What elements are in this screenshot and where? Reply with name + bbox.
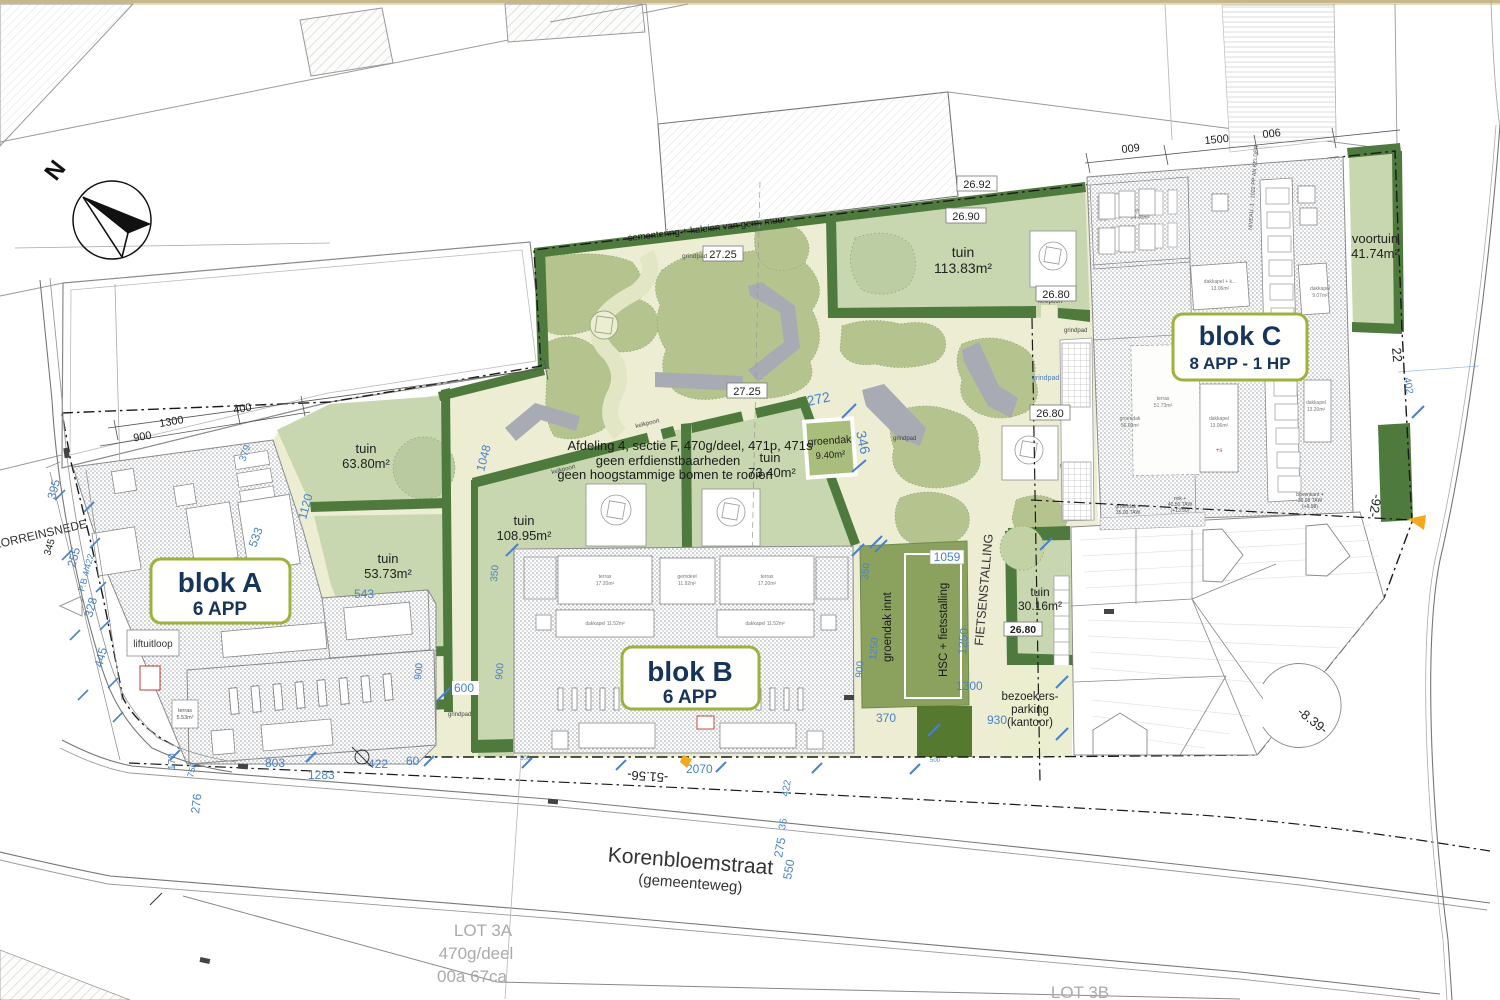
svg-text:11.92m²: 11.92m² [678, 581, 696, 587]
svg-text:22: 22 [1389, 347, 1405, 363]
svg-text:tuin: tuin [514, 513, 535, 528]
svg-text:liftuitloop: liftuitloop [133, 639, 173, 650]
svg-text:terras: terras [1157, 396, 1170, 402]
svg-text:groendak innt: groendak innt [882, 592, 894, 662]
svg-text:6 APP: 6 APP [193, 599, 248, 620]
svg-text:terras: terras [761, 574, 774, 580]
svg-text:27.25: 27.25 [733, 386, 761, 398]
svg-text:9.40m²: 9.40m² [815, 449, 845, 462]
svg-text:blok C: blok C [1199, 321, 1282, 351]
svg-text:00a 67ca: 00a 67ca [437, 967, 507, 986]
svg-text:dakkapel: dakkapel [1209, 416, 1229, 422]
svg-text:LOT 3B: LOT 3B [1051, 983, 1109, 1000]
svg-text:1250: 1250 [868, 637, 881, 661]
svg-text:grindpad: grindpad [893, 436, 916, 442]
svg-text:terras: terras [178, 708, 192, 714]
svg-text:422: 422 [368, 757, 388, 771]
svg-text:276: 276 [188, 792, 204, 814]
svg-text:dakkapel 11.52m²: dakkapel 11.52m² [745, 621, 785, 627]
svg-text:56.00m²: 56.00m² [1121, 423, 1140, 429]
svg-text:(+9.98): (+9.98) [1302, 504, 1318, 510]
svg-text:1059: 1059 [934, 550, 961, 564]
svg-text:600: 600 [454, 681, 474, 695]
svg-text:1500: 1500 [1204, 133, 1230, 147]
svg-text:27.25: 27.25 [709, 249, 737, 261]
svg-text:543: 543 [354, 587, 374, 601]
svg-text:113.83m²: 113.83m² [934, 260, 992, 276]
svg-text:grindpad: grindpad [1064, 328, 1087, 334]
svg-text:60: 60 [406, 754, 420, 768]
svg-text:13.20m²: 13.20m² [1307, 407, 1326, 413]
svg-text:13.06m²: 13.06m² [1211, 286, 1230, 292]
svg-text:006: 006 [1262, 127, 1282, 141]
svg-text:26.90: 26.90 [952, 211, 980, 223]
svg-text:8 APP - 1 HP: 8 APP - 1 HP [1189, 354, 1290, 373]
svg-text:tuin: tuin [378, 551, 399, 566]
svg-text:2070: 2070 [686, 762, 713, 776]
svg-text:dakkapel + k...: dakkapel + k... [1204, 279, 1236, 285]
svg-text:170: 170 [167, 753, 178, 770]
svg-text:grindpad: grindpad [1032, 375, 1059, 382]
svg-text:17.20m²: 17.20m² [758, 581, 777, 587]
svg-text:370: 370 [876, 711, 896, 725]
svg-text:groendak: groendak [1120, 416, 1141, 422]
svg-text:13.06m²: 13.06m² [1210, 423, 1229, 429]
svg-text:350: 350 [489, 564, 501, 582]
svg-text:HSC + fietsstalling: HSC + fietsstalling [938, 583, 950, 677]
svg-text:dakkapel: dakkapel [1306, 400, 1326, 406]
svg-text:geen erfdienstbaarheden: geen erfdienstbaarheden [596, 453, 741, 468]
svg-text:grindpad: grindpad [448, 712, 471, 718]
svg-text:26.92: 26.92 [963, 179, 991, 191]
svg-text:LOT 3A: LOT 3A [454, 921, 513, 940]
svg-text:53.73m²: 53.73m² [364, 566, 412, 581]
svg-text:tuin: tuin [952, 244, 975, 260]
svg-text:bezoekers-: bezoekers- [1002, 691, 1059, 703]
svg-text:1283: 1283 [308, 768, 335, 782]
svg-text:dakkapel 11.52m²: dakkapel 11.52m² [585, 621, 625, 627]
svg-text:470g/deel: 470g/deel [439, 944, 514, 963]
svg-text:gemdeel: gemdeel [677, 574, 696, 580]
svg-text:(kantoor): (kantoor) [1007, 717, 1053, 729]
svg-text:108.95m²: 108.95m² [497, 528, 553, 543]
svg-text:41.74m²: 41.74m² [1351, 246, 1399, 261]
svg-text:63.80m²: 63.80m² [342, 456, 390, 471]
svg-text:26.80: 26.80 [1036, 408, 1064, 420]
svg-text:930: 930 [987, 713, 1007, 727]
svg-text:6 APP: 6 APP [663, 687, 718, 708]
svg-text:1300: 1300 [956, 679, 983, 693]
svg-text:803: 803 [265, 756, 285, 770]
svg-text:terras: terras [599, 574, 612, 580]
svg-text:blok B: blok B [647, 656, 733, 687]
svg-text:26.80: 26.80 [1010, 624, 1036, 636]
svg-text:009: 009 [1121, 142, 1141, 156]
svg-text:51.73m²: 51.73m² [1154, 403, 1173, 409]
svg-text:900: 900 [854, 660, 866, 678]
svg-text:500: 500 [930, 758, 941, 764]
svg-text:geen hoogstammige bomen te roo: geen hoogstammige bomen te rooien [557, 467, 772, 482]
svg-text:26.80: 26.80 [1042, 289, 1070, 301]
svg-text:grindpad: grindpad [682, 253, 708, 260]
svg-text:tuin: tuin [356, 441, 377, 456]
svg-text:35.00 TAW: 35.00 TAW [1116, 510, 1141, 516]
svg-text:+s: +s [1216, 448, 1223, 454]
svg-text:-51.56-: -51.56- [627, 768, 669, 786]
svg-text:900: 900 [413, 662, 425, 680]
svg-text:voortuin: voortuin [1352, 231, 1398, 246]
svg-text:350: 350 [860, 562, 872, 580]
svg-text:parking: parking [1011, 704, 1049, 716]
svg-text:blok A: blok A [178, 567, 263, 598]
svg-text:17.20m²: 17.20m² [596, 581, 615, 587]
svg-text:1250: 1250 [955, 627, 971, 655]
svg-text:Afdeling 4, sectie F, 470g/dee: Afdeling 4, sectie F, 470g/deel, 471p, 4… [567, 438, 813, 453]
svg-text:30.16m²: 30.16m² [1018, 599, 1062, 613]
svg-text:5.53m²: 5.53m² [176, 715, 193, 721]
svg-text:9.07m²: 9.07m² [1312, 293, 1328, 299]
svg-text:dakkapel: dakkapel [1310, 286, 1330, 292]
svg-text:tuin: tuin [1030, 585, 1049, 599]
svg-text:900: 900 [494, 662, 506, 680]
